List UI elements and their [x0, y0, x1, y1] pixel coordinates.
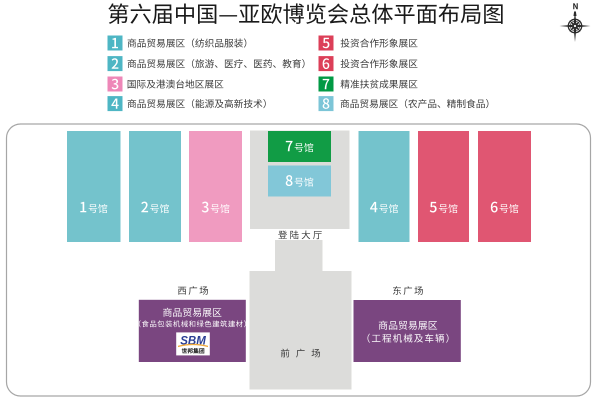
svg-text:SBM: SBM: [180, 336, 206, 348]
